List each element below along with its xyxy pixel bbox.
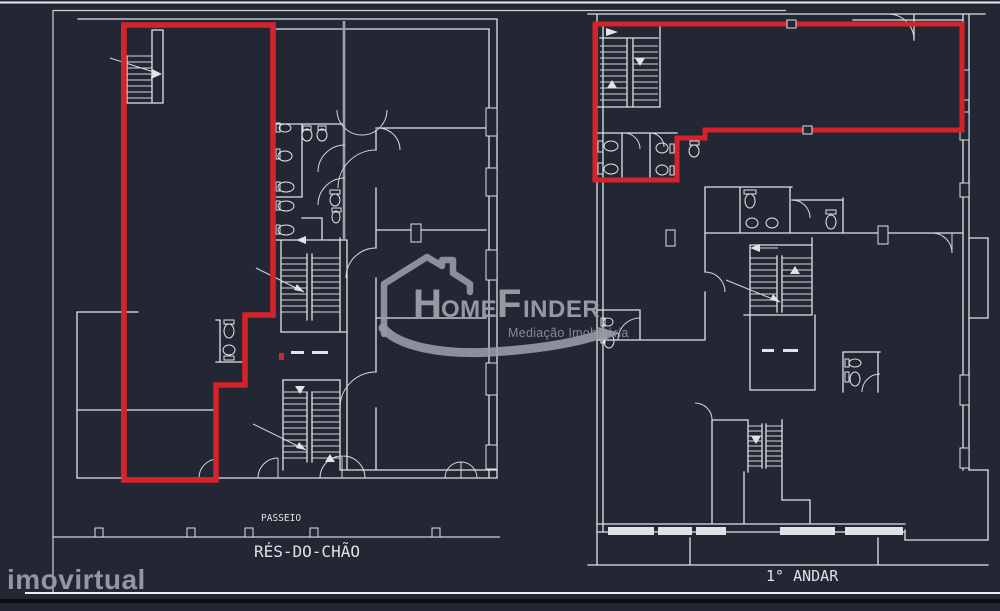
window-sill [608, 527, 654, 535]
window [960, 183, 969, 197]
column-marker [411, 224, 421, 242]
post [432, 528, 440, 537]
window [486, 168, 497, 196]
window [486, 363, 497, 395]
post [187, 528, 195, 537]
column-marker [878, 226, 888, 244]
entrance-marker [279, 353, 284, 360]
wordmark-f: F [497, 282, 522, 326]
marker-on-highlight [803, 126, 812, 134]
window [960, 448, 969, 468]
window [486, 250, 497, 280]
column-marker [666, 230, 675, 246]
window-sill [696, 527, 726, 535]
window-sill [658, 527, 692, 535]
bottom-band [0, 599, 1000, 603]
post [245, 528, 253, 537]
label-primeiro-andar: 1° ANDAR [766, 567, 839, 585]
post [95, 528, 103, 537]
window-sill [780, 527, 835, 535]
wordmark-inder: INDER [523, 296, 600, 323]
window [486, 445, 497, 469]
listing-floorplan-image: PASSEIO RÉS-DO-CHÃO [0, 0, 1000, 611]
label-passeio: PASSEIO [261, 513, 301, 524]
wordmark-ome: OME [441, 296, 497, 323]
homefinder-subtitle: Mediação Imobiliária [508, 326, 629, 340]
post [310, 528, 318, 537]
marker-on-highlight [787, 20, 796, 28]
window [960, 375, 969, 405]
wordmark-h: H [413, 282, 442, 326]
label-res-do-chao: RÉS-DO-CHÃO [254, 542, 360, 561]
imovirtual-watermark: imovirtual [7, 564, 146, 595]
window [486, 108, 497, 136]
window-sill [845, 527, 903, 535]
floorplan-canvas: PASSEIO RÉS-DO-CHÃO [0, 0, 1000, 611]
